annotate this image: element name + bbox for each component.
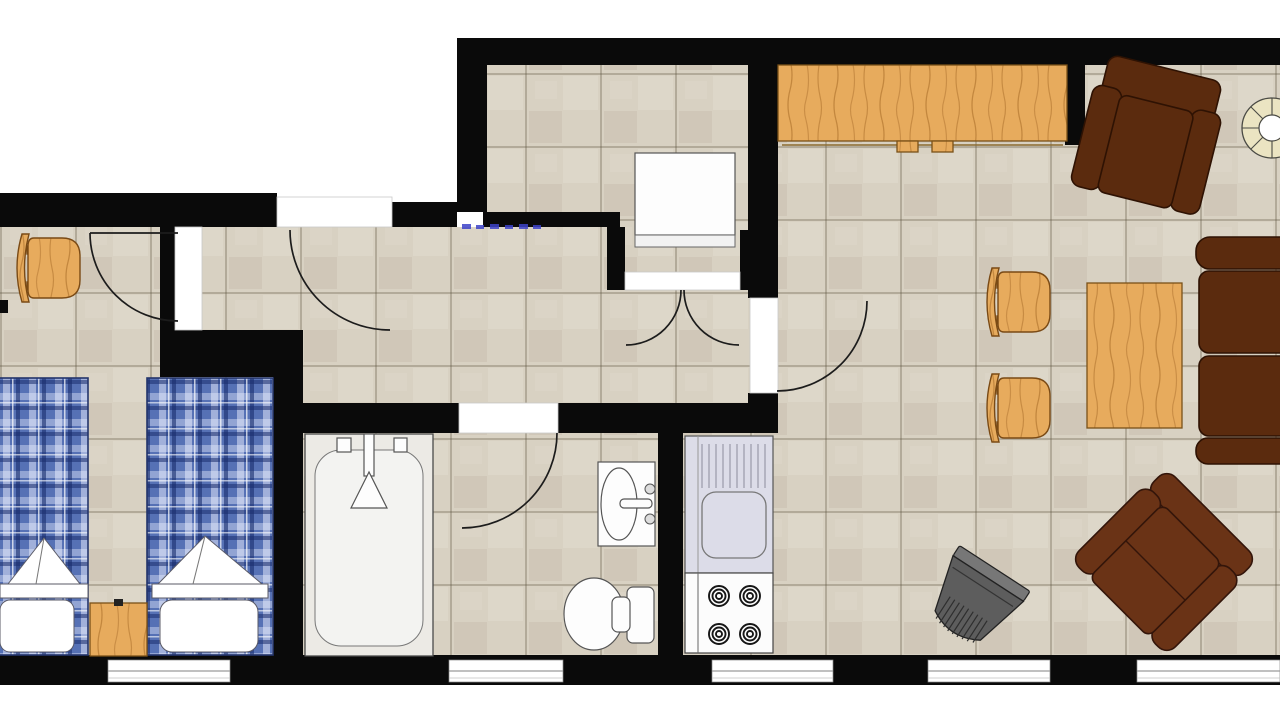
- shower-control-right: [394, 438, 407, 452]
- sofa-right-cushion-2: [1199, 356, 1280, 436]
- wall-hallway-top: [483, 212, 620, 227]
- counter-leg-left: [897, 141, 918, 152]
- twin-bed-left: [0, 378, 88, 655]
- bedroom-door-opening: [175, 227, 202, 330]
- window-kitchenette: [712, 660, 833, 682]
- wall-bedroom-door-jamb: [160, 227, 175, 330]
- wall-left-stub: [0, 300, 8, 313]
- sofa-right-cushion-1: [1199, 271, 1280, 353]
- wall-living-stub: [1065, 38, 1085, 145]
- toilet-tank: [627, 587, 654, 643]
- wall-hallway-bottom: [160, 330, 303, 377]
- twin-bed-right: [147, 378, 273, 655]
- refrigerator: [635, 153, 735, 247]
- sofa-right-arm-bottom: [1196, 438, 1280, 464]
- window-living-left: [928, 660, 1050, 682]
- wall-top: [457, 38, 1280, 65]
- bathroom-door-opening: [459, 403, 558, 433]
- entry-door-opening: [277, 197, 392, 227]
- window-living-right: [1137, 660, 1280, 682]
- living-door-opening: [750, 298, 778, 393]
- wall-kitchen-stub: [607, 227, 625, 290]
- kitchen-room-furniture: [635, 153, 735, 247]
- wall-bathroom-top-left: [273, 403, 459, 433]
- wall-bathroom-top-right: [558, 403, 778, 433]
- bed-left-pillow: [0, 600, 74, 652]
- kitchenette: [685, 436, 773, 653]
- toilet: [564, 578, 654, 650]
- nightstand: [90, 599, 147, 656]
- floor-plan: [0, 0, 1280, 720]
- shower-control-left: [337, 438, 351, 452]
- basin-faucet: [620, 499, 652, 508]
- bed-right-pillow: [160, 600, 258, 652]
- toilet-seat-hinge: [612, 597, 630, 632]
- kitchen-sink-counter: [685, 436, 773, 573]
- counter-leg-right: [932, 141, 953, 152]
- bathtub: [305, 434, 433, 656]
- stove: [685, 573, 773, 653]
- wall-bathroom-right: [658, 433, 683, 655]
- sofa-right: [1196, 237, 1280, 464]
- bed-left-sheet: [0, 584, 88, 598]
- bed-right-sheet: [152, 584, 268, 598]
- wall-entry-right: [392, 202, 457, 227]
- floor-plan-canvas: [0, 0, 1280, 720]
- wash-basin: [598, 462, 655, 546]
- wall-bedroom-top: [0, 193, 277, 227]
- wall-living-upper: [748, 65, 778, 298]
- kitchen-counter: [778, 65, 1067, 152]
- window-bedroom: [108, 660, 230, 682]
- refrigerator-front: [635, 235, 735, 247]
- nightstand-knob: [114, 599, 123, 606]
- kitchen-double-door-opening: [625, 272, 740, 290]
- shower-pipe: [364, 434, 374, 476]
- dining-table: [1087, 283, 1182, 428]
- sofa-right-arm-top: [1196, 237, 1280, 269]
- window-bathroom: [449, 660, 563, 682]
